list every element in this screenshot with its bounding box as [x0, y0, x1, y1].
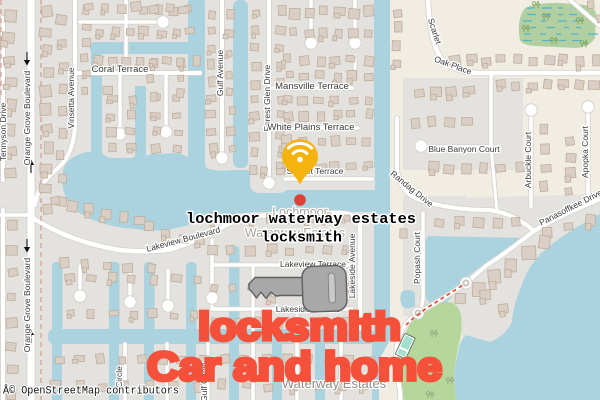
svg-text:Blue Banyon Court: Blue Banyon Court [428, 144, 500, 154]
svg-text:locksmith: locksmith [261, 229, 342, 247]
svg-text:Orange Grove Boulevard: Orange Grove Boulevard [22, 70, 32, 165]
svg-text:Gulf Avenue: Gulf Avenue [215, 50, 225, 96]
svg-text:Vinsetta Avenue: Vinsetta Avenue [66, 67, 76, 128]
svg-text:White Plains Terrace: White Plains Terrace [268, 122, 355, 133]
svg-text:Apopka Court: Apopka Court [580, 125, 590, 178]
svg-text:Popash Court: Popash Court [412, 231, 422, 284]
svg-text:Tennyson Drive: Tennyson Drive [0, 102, 8, 161]
svg-text:Orange Grove Boulevard: Orange Grove Boulevard [22, 257, 32, 352]
svg-text:Car and home: Car and home [147, 345, 442, 389]
svg-text:Coral Terrace: Coral Terrace [92, 64, 149, 75]
svg-text:Arbuckle Court: Arbuckle Court [523, 131, 533, 188]
svg-text:lochmoor waterway estates: lochmoor waterway estates [186, 210, 416, 228]
svg-text:locksmith: locksmith [198, 306, 401, 349]
svg-text:Lakeside Avenue: Lakeside Avenue [347, 233, 357, 298]
svg-text:Mansville Terrace: Mansville Terrace [275, 81, 349, 92]
svg-text:Â© OpenStreetMap contributors: Â© OpenStreetMap contributors [3, 384, 179, 398]
